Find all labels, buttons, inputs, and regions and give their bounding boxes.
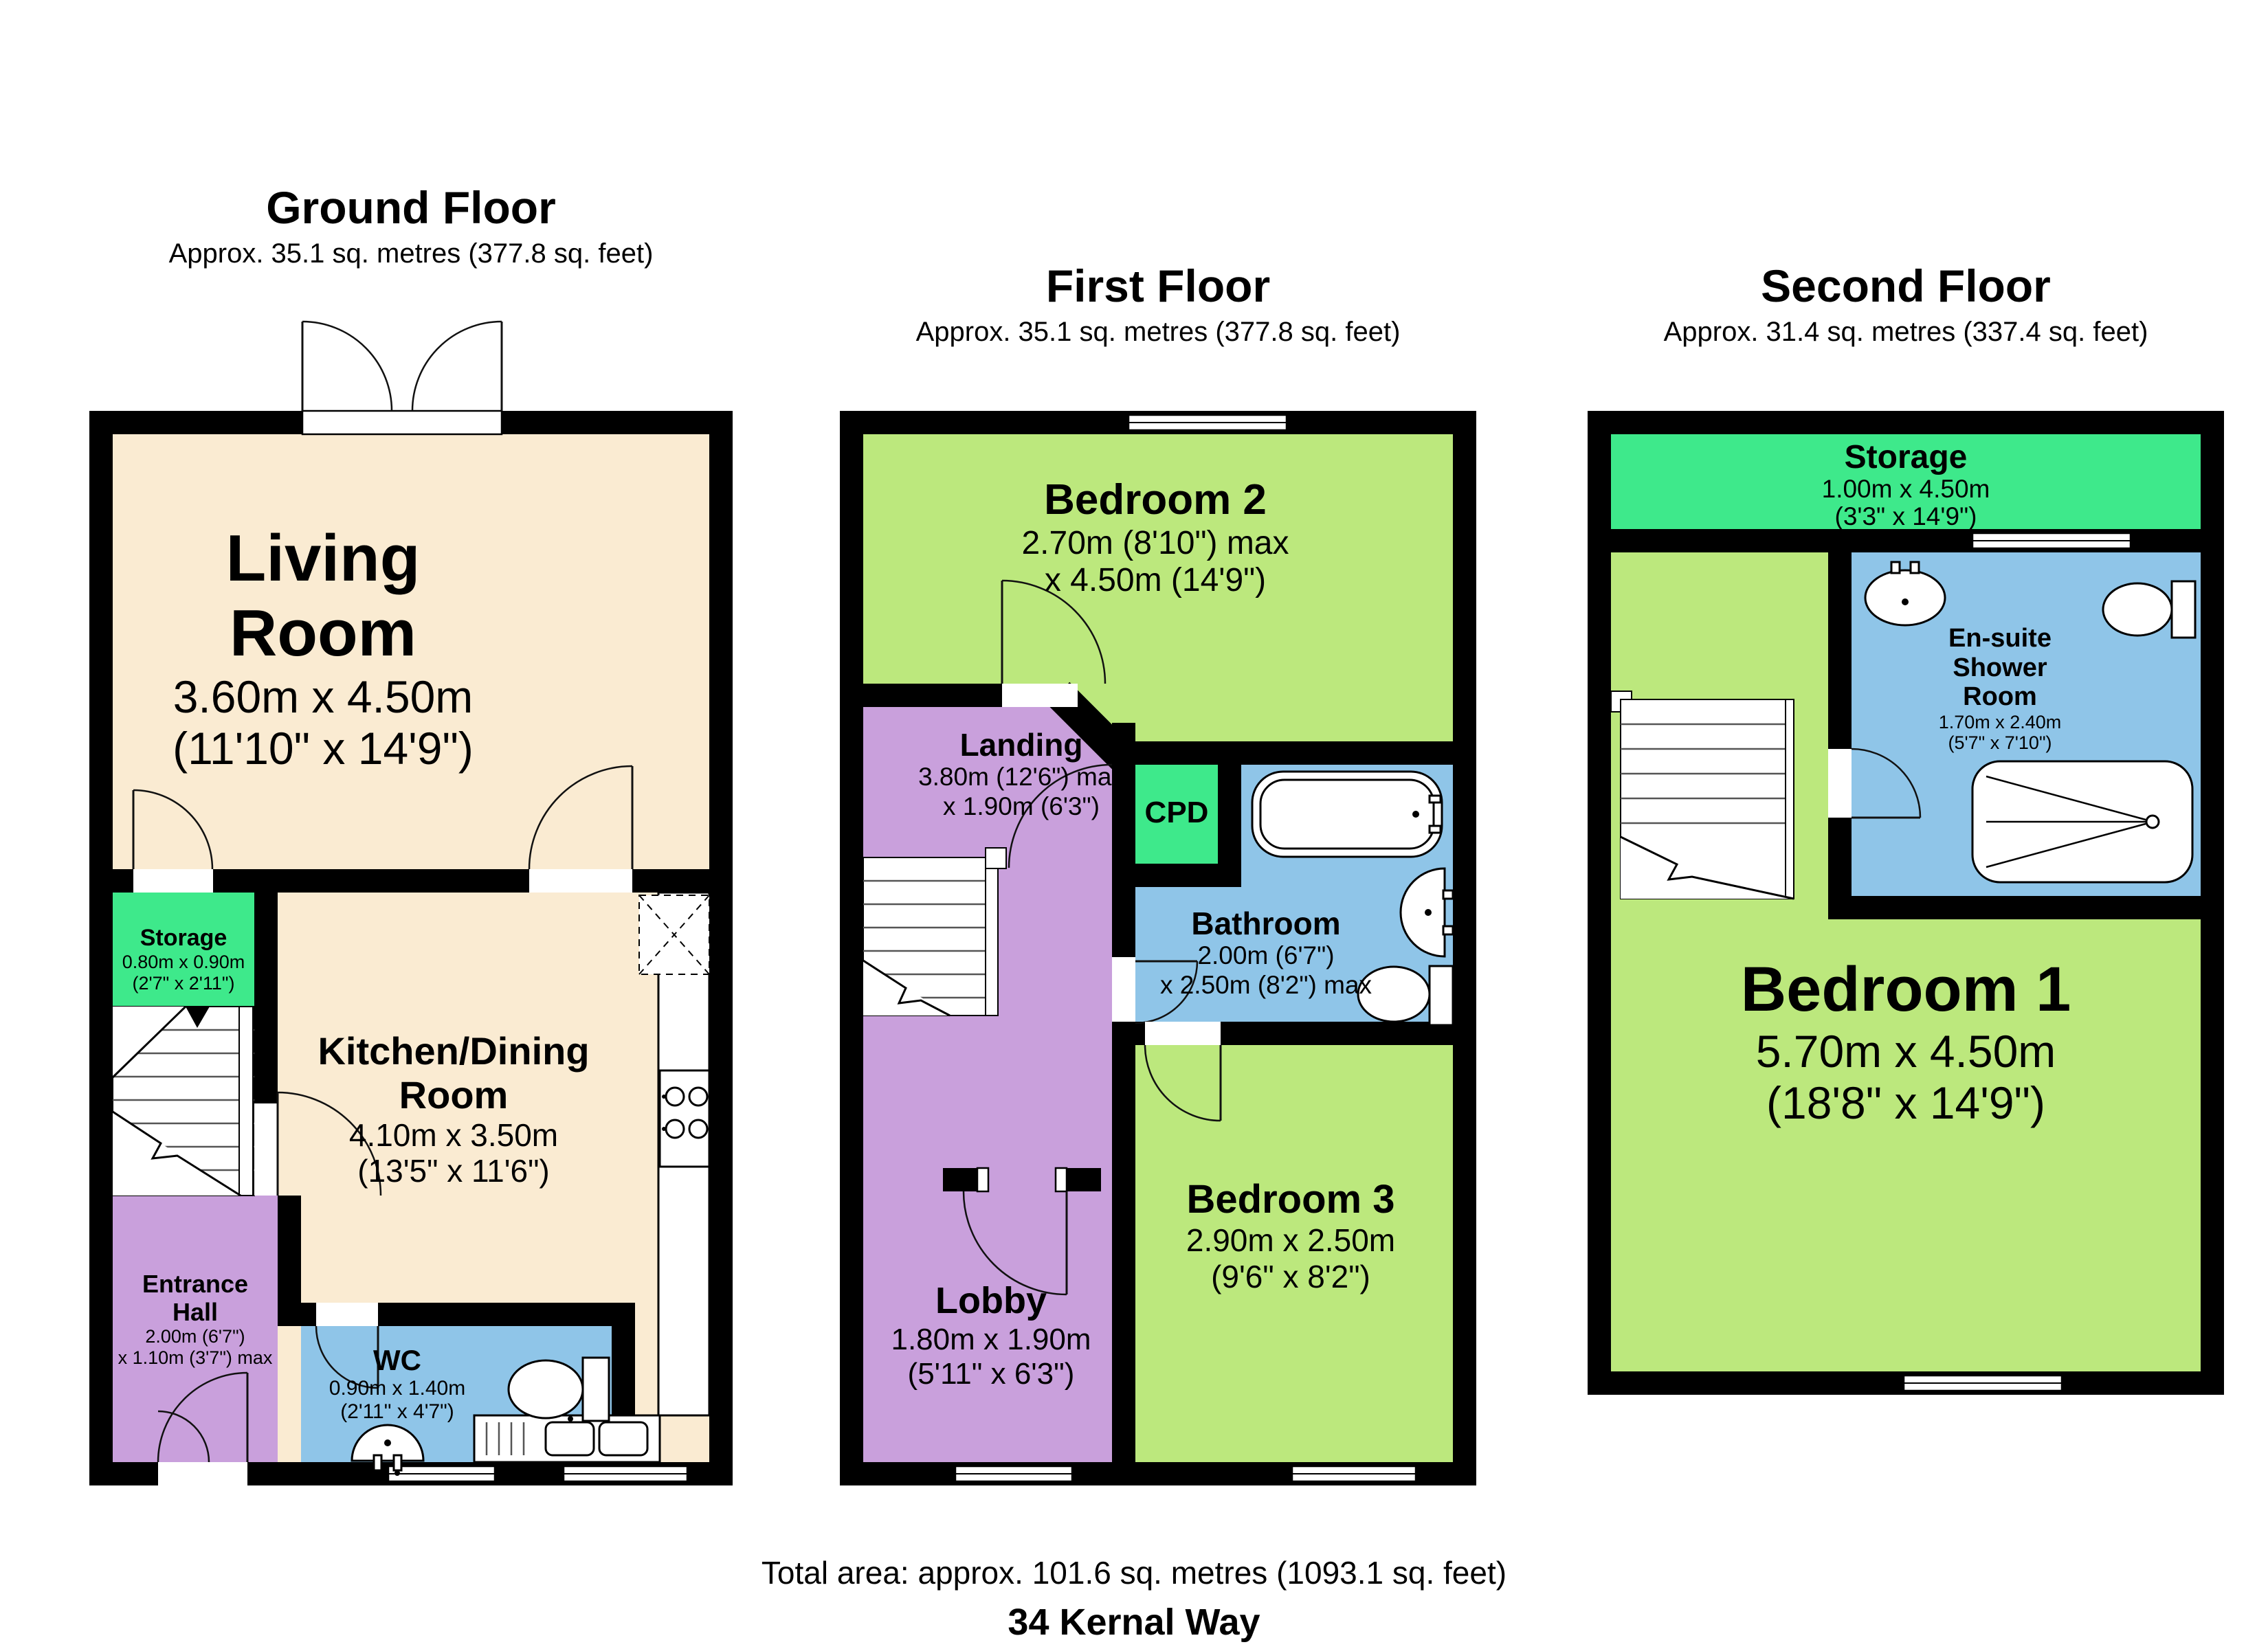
room-label-bedroom1: Bedroom 1 5.70m x 4.50m (18'8" x 14'9") <box>1629 954 2183 1129</box>
room-label-bedroom2: Bedroom 2 2.70m (8'10") max x 4.50m (14'… <box>906 476 1405 600</box>
window-wc <box>388 1466 495 1481</box>
room-label-storage: Storage 0.80m x 0.90m (2'7" x 2'11") <box>113 925 254 994</box>
window-lobby <box>955 1466 1072 1481</box>
second-floor-plan: Storage 1.00m x 4.50m (3'3" x 14'9") En-… <box>1588 315 2224 1395</box>
total-area-text: Total area: approx. 101.6 sq. metres (10… <box>0 1554 2268 1591</box>
toilet-icon <box>509 1358 609 1421</box>
floor-name: Second Floor <box>1588 262 2224 310</box>
room-label-ensuite: En-suite Shower Room 1.70m x 2.40m (5'7"… <box>1911 624 2089 753</box>
room-label-wc: WC 0.90m x 1.40m (2'11" x 4'7") <box>301 1344 493 1424</box>
address-text: 34 Kernal Way <box>0 1601 2268 1644</box>
hob-icon <box>660 1070 709 1167</box>
window-kitchen <box>564 1466 687 1481</box>
toilet-icon <box>2103 581 2195 638</box>
room-label-lobby: Lobby 1.80m x 1.90m (5'11" x 6'3") <box>863 1280 1119 1391</box>
window-bedroom3 <box>1292 1466 1416 1481</box>
french-doors <box>302 322 502 434</box>
ground-floor-plan: Living Room 3.60m x 4.50m (11'10" x 14'9… <box>89 315 733 1485</box>
shower-tray-icon <box>1972 761 2192 882</box>
stairs <box>1611 691 1794 899</box>
room-label-storage2: Storage 1.00m x 4.50m (3'3" x 14'9") <box>1684 440 2128 530</box>
room-label-cpd: CPD <box>1133 796 1221 830</box>
room-label-landing: Landing 3.80m (12'6") max x 1.90m (6'3") <box>870 727 1172 821</box>
floor-name: First Floor <box>840 262 1476 310</box>
kitchen-sink-icon <box>474 1415 660 1462</box>
bathtub-icon <box>1252 772 1442 857</box>
room-label-kitchen: Kitchen/Dining Room 4.10m x 3.50m (13'5"… <box>254 1029 653 1189</box>
floorplan-page: Ground Floor Approx. 35.1 sq. metres (37… <box>0 0 2268 1649</box>
first-floor-plan: Bedroom 2 2.70m (8'10") max x 4.50m (14'… <box>840 315 1476 1485</box>
room-label-bathroom: Bathroom 2.00m (6'7") x 2.50m (8'2") max <box>1129 906 1403 1000</box>
window-bedroom2 <box>1129 415 1287 430</box>
window-bedroom1 <box>1904 1376 2062 1391</box>
floor-title-ground: Ground Floor Approx. 35.1 sq. metres (37… <box>89 184 733 269</box>
stairs <box>863 848 1006 1016</box>
floor-name: Ground Floor <box>89 184 733 232</box>
floor-area: Approx. 35.1 sq. metres (377.8 sq. feet) <box>89 238 733 269</box>
room-label-hall: Entrance Hall 2.00m (6'7") x 1.10m (3'7"… <box>106 1270 285 1369</box>
stairs <box>113 1007 254 1196</box>
room-label-bedroom3: Bedroom 3 2.90m x 2.50m (9'6" x 8'2") <box>1129 1177 1453 1294</box>
window-ensuite <box>1972 533 2131 548</box>
room-label-living: Living Room 3.60m x 4.50m (11'10" x 14'9… <box>131 521 515 774</box>
